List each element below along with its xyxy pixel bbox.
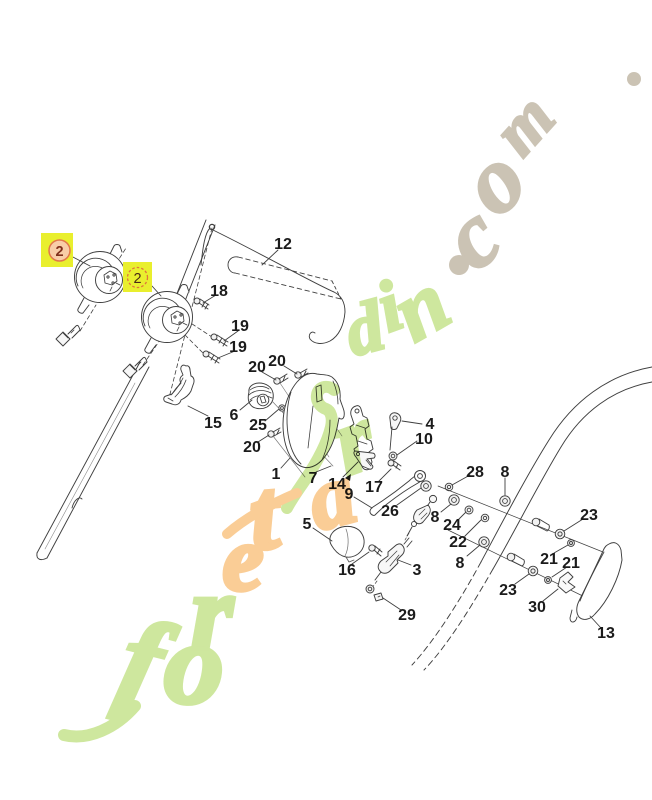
- svg-text:23: 23: [580, 507, 598, 524]
- svg-text:19: 19: [231, 318, 249, 335]
- svg-text:5: 5: [303, 516, 312, 533]
- svg-text:18: 18: [210, 283, 228, 300]
- svg-text:16: 16: [338, 562, 356, 579]
- svg-text:20: 20: [243, 439, 261, 456]
- svg-text:25: 25: [249, 417, 267, 434]
- svg-text:2: 2: [55, 244, 63, 260]
- svg-text:8: 8: [501, 464, 510, 481]
- svg-text:24: 24: [443, 517, 461, 534]
- svg-text:15: 15: [204, 415, 222, 432]
- svg-text:13: 13: [597, 625, 615, 642]
- svg-text:10: 10: [415, 431, 433, 448]
- svg-text:26: 26: [381, 503, 399, 520]
- svg-text:28: 28: [466, 464, 484, 481]
- svg-text:20: 20: [268, 353, 286, 370]
- svg-text:21: 21: [562, 555, 580, 572]
- svg-text:2: 2: [133, 271, 141, 287]
- svg-text:23: 23: [499, 582, 517, 599]
- svg-text:29: 29: [398, 607, 416, 624]
- svg-text:8: 8: [456, 555, 465, 572]
- svg-text:21: 21: [540, 551, 558, 568]
- svg-text:20: 20: [248, 359, 266, 376]
- svg-text:3: 3: [413, 562, 422, 579]
- svg-text:12: 12: [274, 236, 292, 253]
- svg-text:22: 22: [449, 534, 467, 551]
- svg-text:19: 19: [229, 339, 247, 356]
- svg-text:8: 8: [431, 509, 440, 526]
- svg-text:6: 6: [230, 407, 239, 424]
- svg-text:30: 30: [528, 599, 546, 616]
